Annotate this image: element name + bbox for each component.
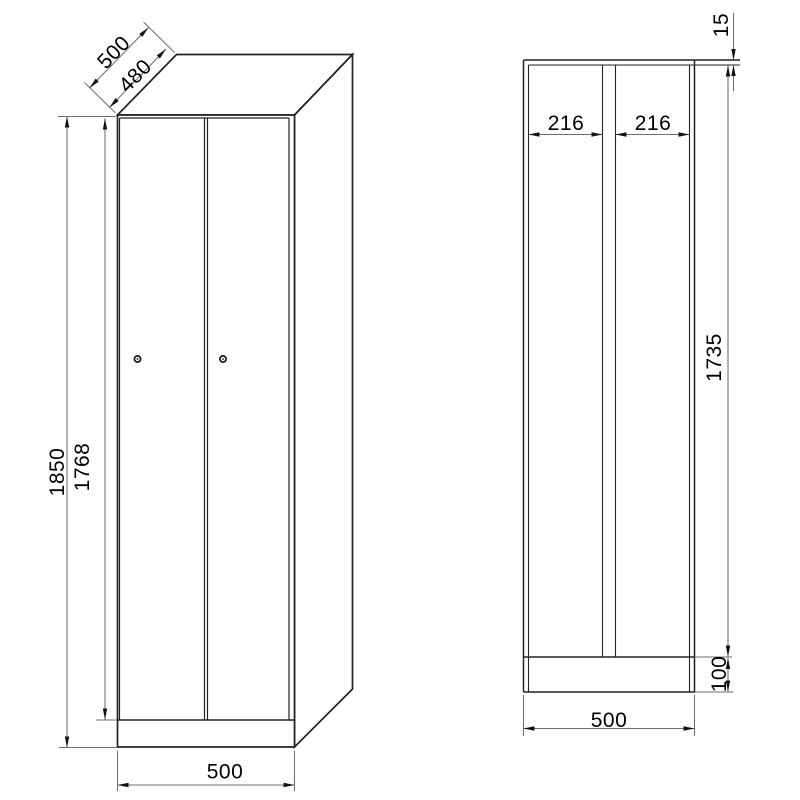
- cabinet-side-face: [295, 55, 353, 748]
- dim-label-width-front: 500: [207, 761, 244, 784]
- dim-label-compartment-left: 216: [548, 112, 585, 135]
- dim-label-total-height: 1850: [46, 448, 69, 497]
- dim-label-width-section: 500: [591, 709, 628, 732]
- dim-label-compartment-right: 216: [635, 112, 672, 135]
- extension-line-depth-back: [144, 22, 175, 53]
- front-section-view: 216 216 15 1735 100 500: [524, 13, 741, 736]
- technical-drawing-canvas: 1850 1768 500 500 480 216 216 15: [0, 0, 800, 800]
- front-perspective-view: 1850 1768 500 500 480: [46, 22, 353, 791]
- right-door-lock-pin-icon: [222, 358, 224, 360]
- left-door-lock-pin-icon: [137, 358, 139, 360]
- extension-line-depth-front: [85, 83, 116, 114]
- cabinet-front-face: [118, 115, 295, 747]
- dim-label-top-gap: 15: [710, 13, 733, 37]
- dim-label-door-height: 1768: [71, 443, 94, 492]
- dim-label-plinth-height: 100: [708, 656, 731, 693]
- dim-label-inner-height: 1735: [703, 333, 726, 382]
- locker-drawing: 1850 1768 500 500 480 216 216 15: [0, 0, 800, 800]
